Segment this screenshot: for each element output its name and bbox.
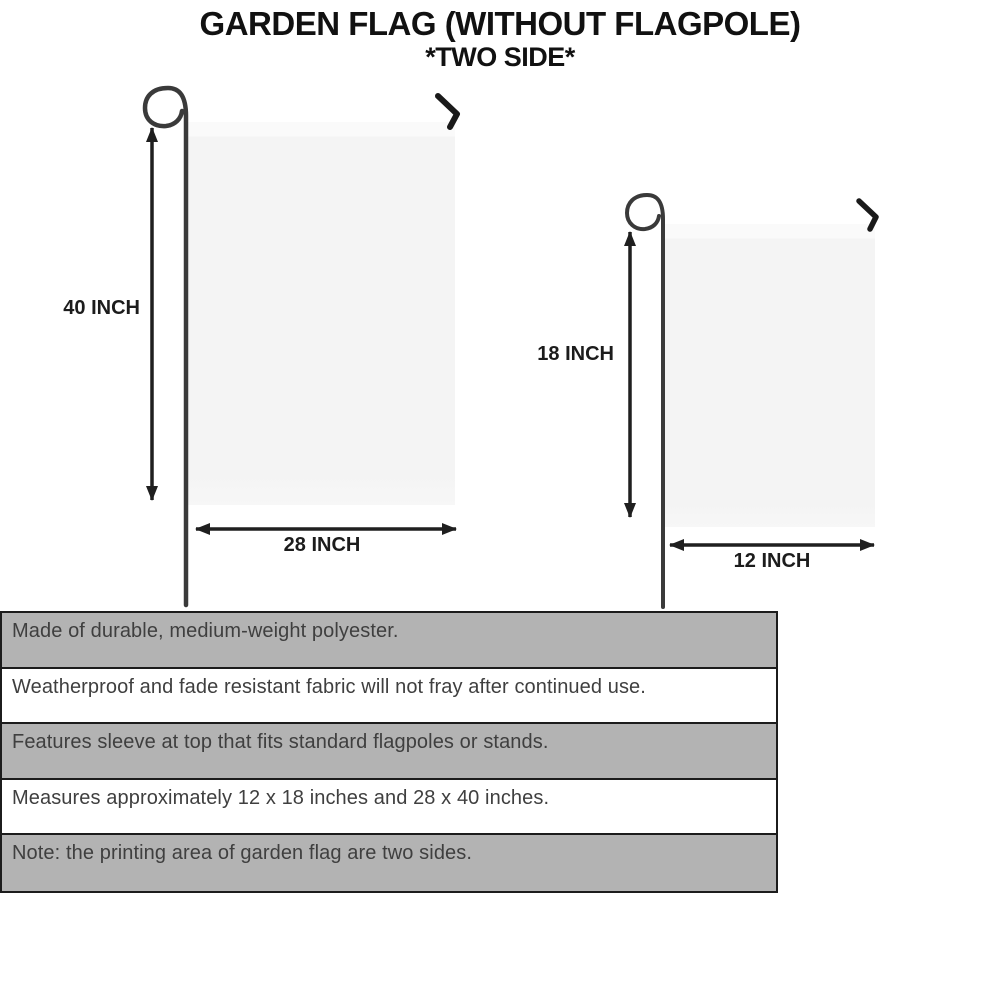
feature-text: Made of durable, medium-weight polyester… [12, 620, 399, 642]
feature-row-measures: Measures approximately 12 x 18 inches an… [2, 780, 776, 836]
feature-text: Measures approximately 12 x 18 inches an… [12, 787, 549, 809]
feature-row-weatherproof: Weatherproof and fade resistant fabric w… [2, 669, 776, 725]
features-table: Made of durable, medium-weight polyester… [0, 611, 778, 893]
large-flag-height-label: 40 INCH [30, 297, 140, 320]
feature-text: Note: the printing area of garden flag a… [12, 842, 472, 864]
large-flag-width-label: 28 INCH [222, 534, 422, 557]
feature-row-material: Made of durable, medium-weight polyester… [2, 613, 776, 669]
large-flag-hook-icon [438, 96, 457, 127]
feature-text: Features sleeve at top that fits standar… [12, 731, 549, 753]
feature-text: Weatherproof and fade resistant fabric w… [12, 676, 646, 698]
small-flag-height-label: 18 INCH [504, 343, 614, 366]
feature-row-sleeve: Features sleeve at top that fits standar… [2, 724, 776, 780]
small-flag-hook-icon [859, 201, 876, 229]
product-infographic: GARDEN FLAG (WITHOUT FLAGPOLE) *TWO SIDE… [0, 0, 1000, 1000]
small-flag-width-label: 12 INCH [672, 550, 872, 573]
small-flagpole [627, 195, 663, 607]
feature-row-note: Note: the printing area of garden flag a… [2, 835, 776, 891]
